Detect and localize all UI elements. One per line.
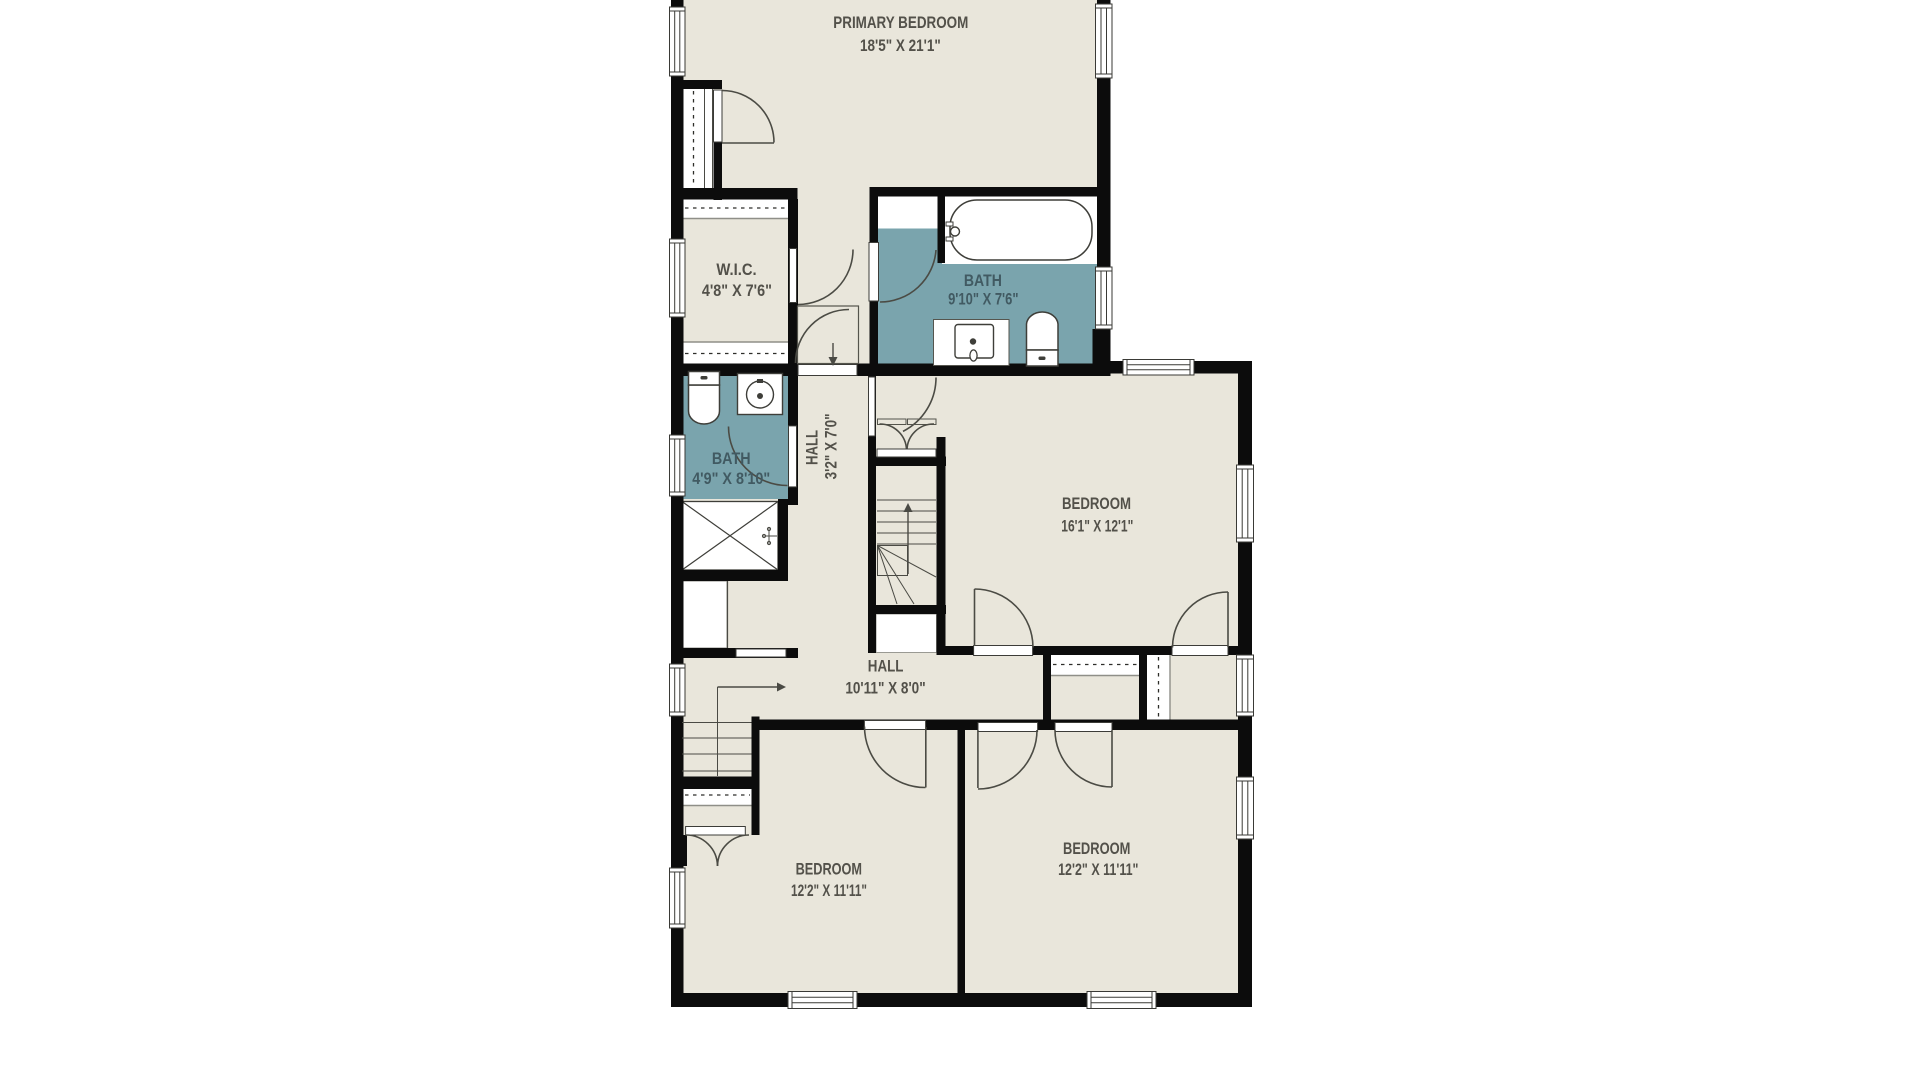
- svg-text:9'10" X 7'6": 9'10" X 7'6": [948, 291, 1018, 309]
- svg-text:10'11" X 8'0": 10'11" X 8'0": [845, 680, 925, 698]
- svg-text:BEDROOM: BEDROOM: [796, 860, 862, 879]
- svg-text:BATH: BATH: [712, 449, 751, 468]
- svg-text:3'2" X 7'0": 3'2" X 7'0": [823, 413, 841, 479]
- svg-text:BEDROOM: BEDROOM: [1062, 494, 1131, 513]
- svg-text:12'2" X 11'11": 12'2" X 11'11": [791, 882, 867, 900]
- svg-text:BATH: BATH: [964, 271, 1002, 290]
- svg-text:HALL: HALL: [803, 430, 822, 465]
- svg-text:4'9" X 8'10": 4'9" X 8'10": [692, 470, 770, 488]
- svg-text:18'5" X 21'1": 18'5" X 21'1": [860, 37, 941, 55]
- svg-text:BEDROOM: BEDROOM: [1063, 839, 1130, 858]
- svg-text:PRIMARY BEDROOM: PRIMARY BEDROOM: [833, 13, 968, 32]
- svg-text:W.I.C.: W.I.C.: [716, 260, 756, 279]
- svg-text:16'1" X 12'1": 16'1" X 12'1": [1061, 518, 1133, 536]
- svg-text:4'8" X 7'6": 4'8" X 7'6": [702, 282, 772, 300]
- svg-text:12'2" X 11'11": 12'2" X 11'11": [1058, 861, 1138, 879]
- svg-text:HALL: HALL: [868, 657, 904, 676]
